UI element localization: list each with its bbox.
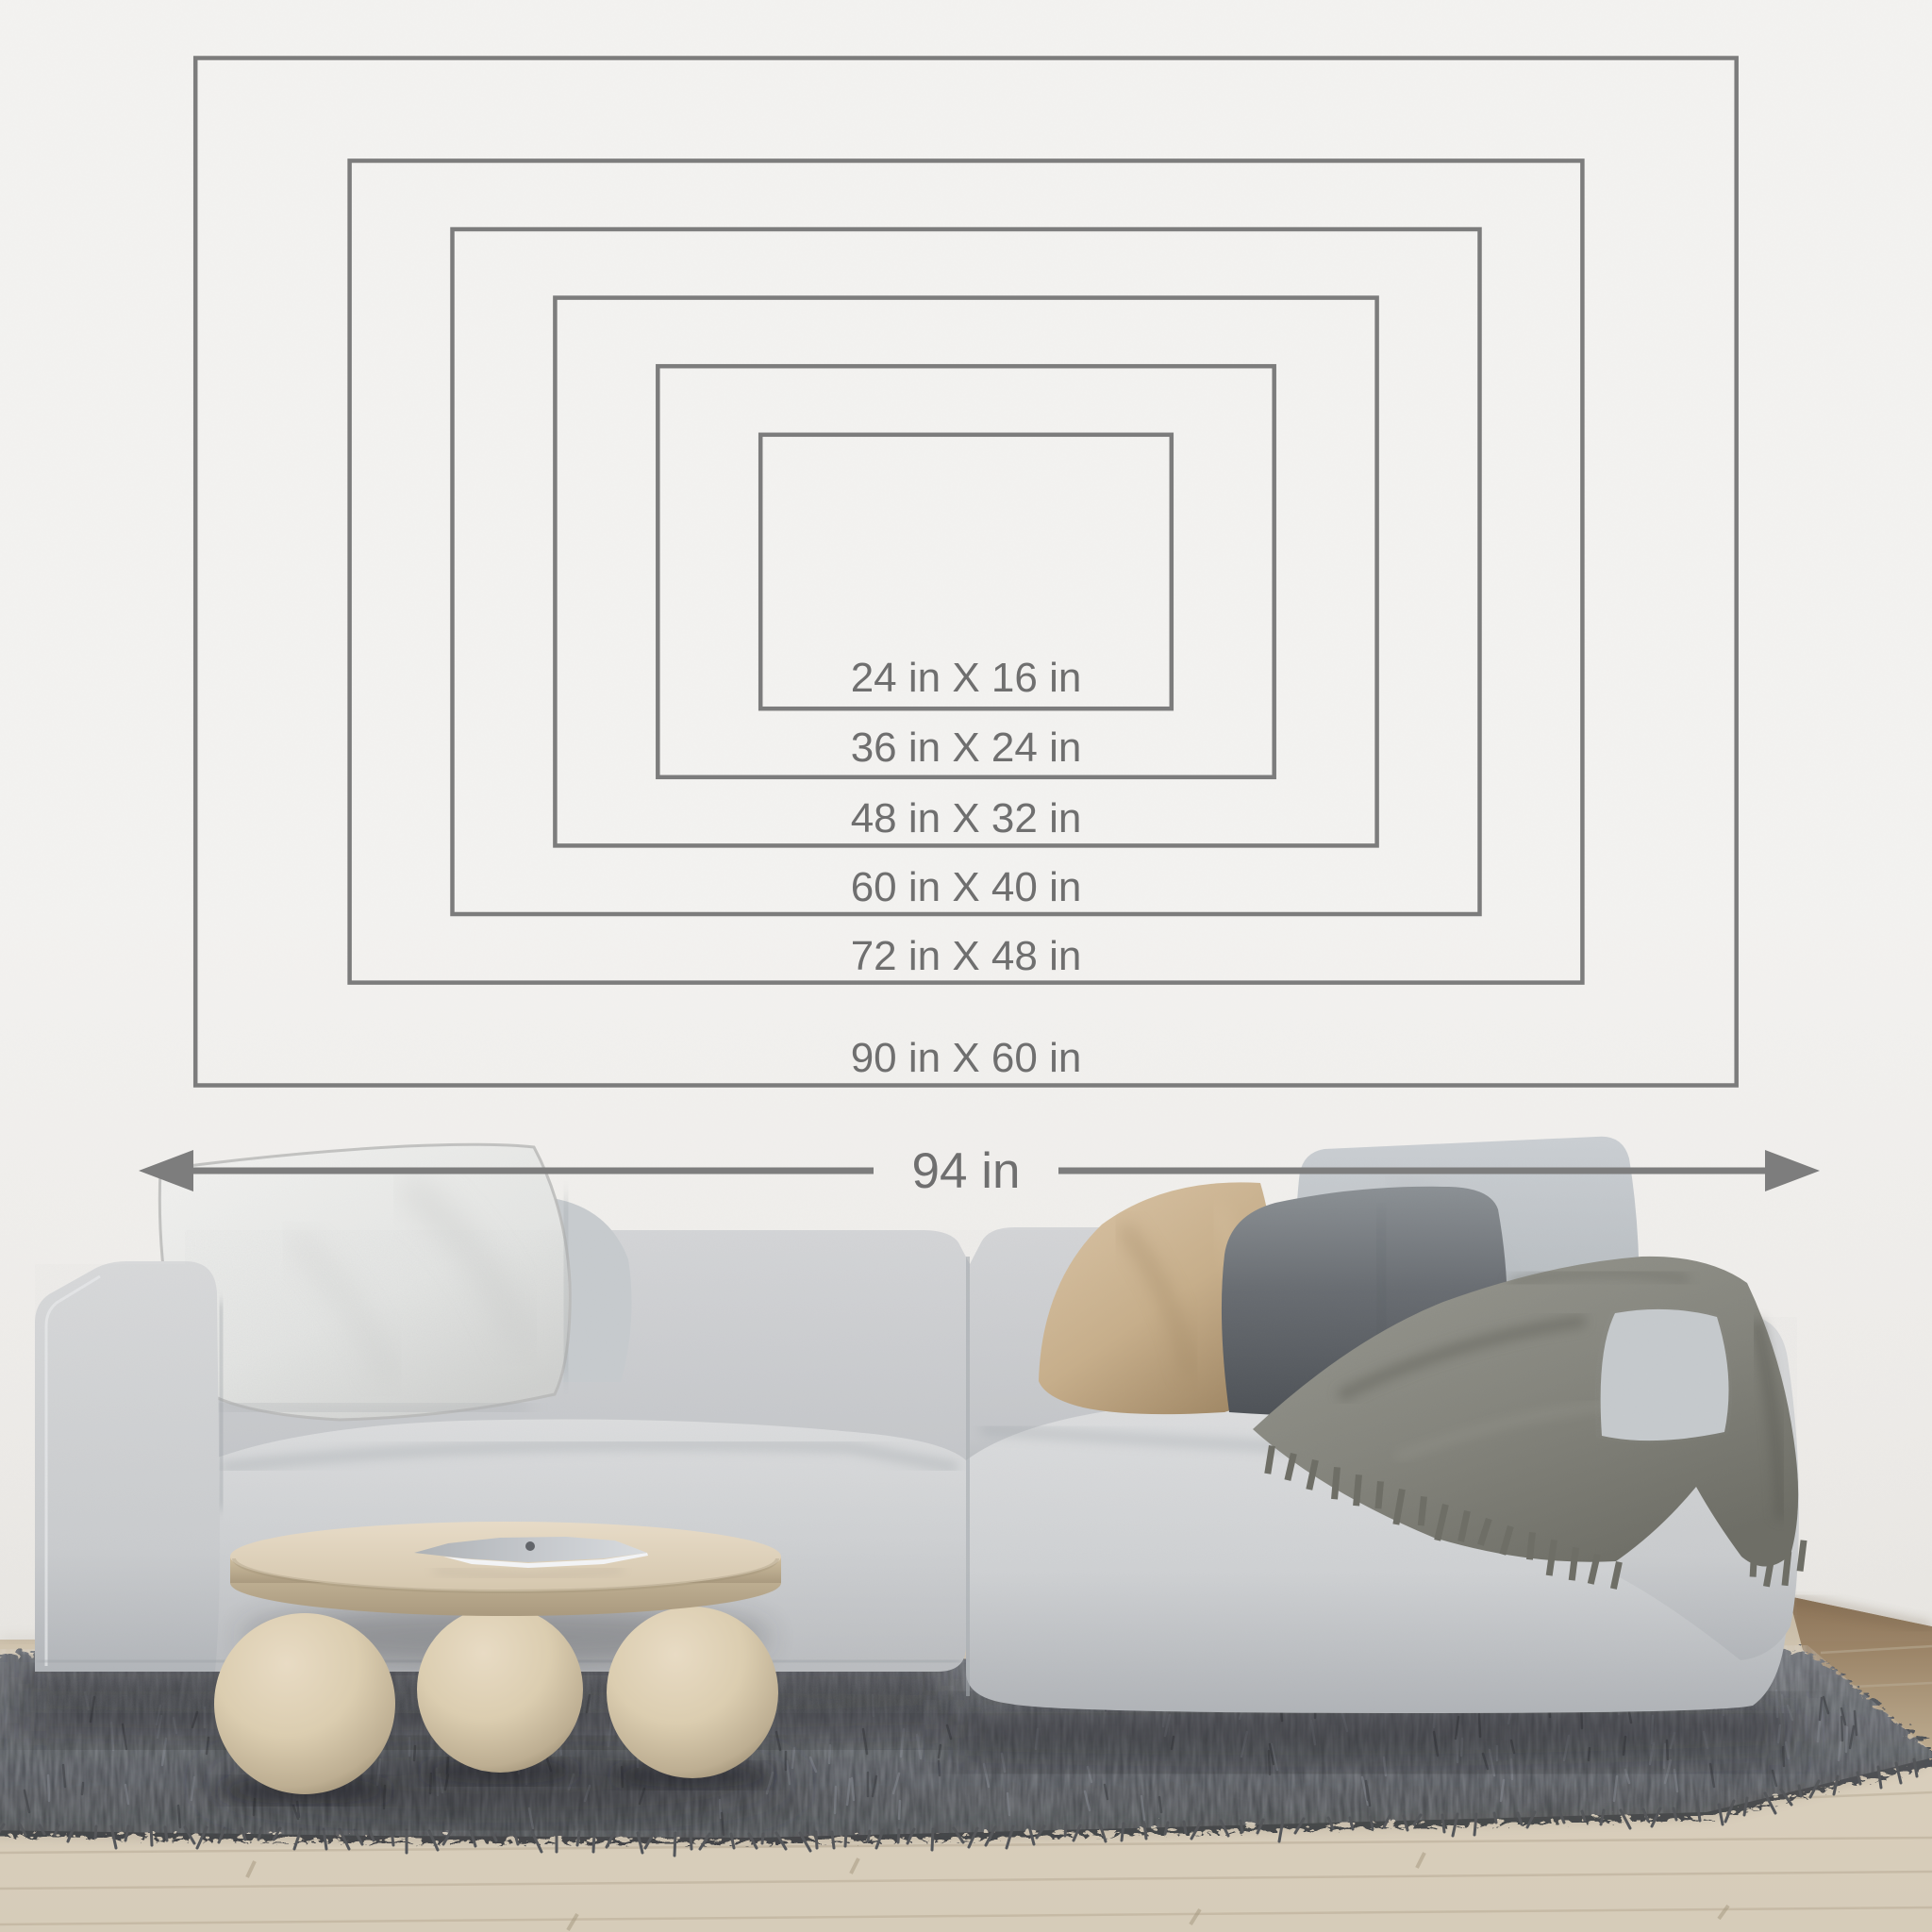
svg-text:72 in X 48 in: 72 in X 48 in [851,933,1082,979]
svg-text:36 in X 24 in: 36 in X 24 in [851,724,1082,771]
svg-text:94 in: 94 in [912,1143,1021,1199]
svg-text:60 in X 40 in: 60 in X 40 in [851,864,1082,910]
svg-text:90 in X 60 in: 90 in X 60 in [851,1035,1082,1081]
svg-text:48 in X 32 in: 48 in X 32 in [851,795,1082,841]
svg-text:24 in X 16 in: 24 in X 16 in [851,655,1082,701]
